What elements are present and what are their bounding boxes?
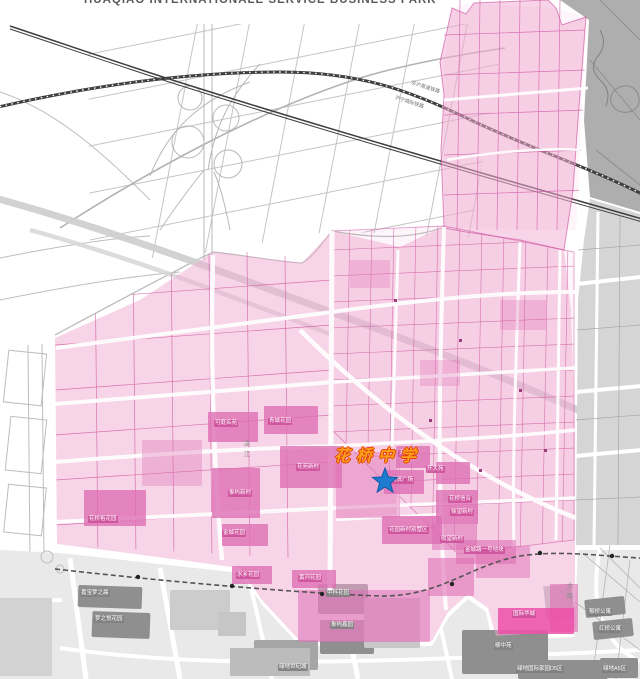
bright-block	[498, 608, 574, 634]
map-canvas[interactable]: HUAQIAO INTERNATIONALE SERVICE BUSINESS …	[0, 0, 640, 679]
school-star-marker[interactable]	[371, 466, 399, 494]
zone-gray-right	[575, 199, 640, 546]
map-artwork	[0, 0, 640, 679]
star-icon	[373, 468, 398, 492]
school-name-label: 花桥中学	[334, 442, 422, 466]
header-caption: HUAQIAO INTERNATIONALE SERVICE BUSINESS …	[84, 0, 437, 6]
